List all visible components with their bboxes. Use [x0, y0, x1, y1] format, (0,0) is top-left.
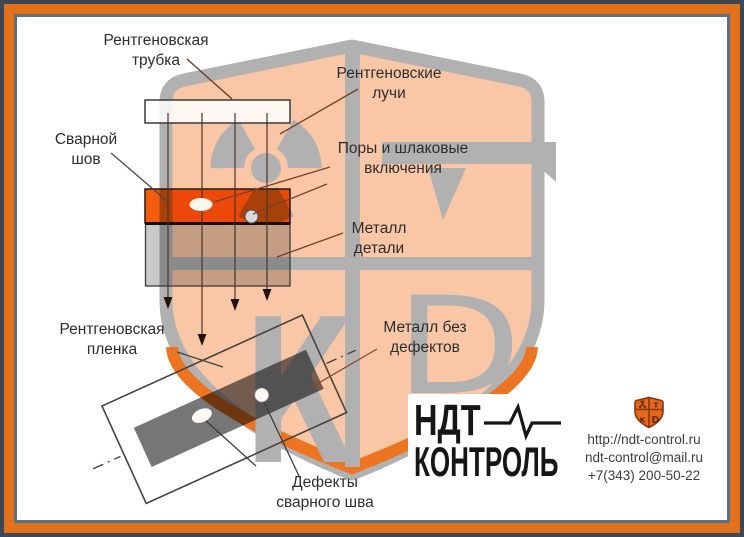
- label-xray-rays: Рентгеновские лучи: [337, 64, 442, 104]
- film-centerline-left: [93, 456, 120, 468]
- svg-text:т: т: [654, 401, 659, 411]
- weld-inclusion-shape: [245, 210, 258, 223]
- contact-block: http://ndt-control.ru ndt-control@mail.r…: [585, 431, 703, 485]
- logo-text-ndt: НДТ: [414, 399, 481, 443]
- contact-phone: +7(343) 200-50-22: [585, 467, 703, 485]
- weld-pore-shape: [190, 198, 213, 211]
- leader-weld-seam: [111, 153, 167, 201]
- logo-shield-icon: т к D: [633, 396, 665, 429]
- label-weld-defects: Дефекты сварного шва: [276, 473, 374, 513]
- logo-text-kontrol: КОНТРОЛЬ: [414, 441, 558, 483]
- pulse-icon: [482, 403, 564, 441]
- contact-website: http://ndt-control.ru: [585, 431, 703, 449]
- label-pores: Поры и шлаковые включения: [338, 139, 468, 179]
- label-metal-part: Металл детали: [352, 219, 407, 259]
- svg-text:D: D: [652, 415, 660, 426]
- svg-text:к: к: [640, 416, 646, 426]
- label-weld-seam: Сварной шов: [55, 130, 117, 170]
- label-film: Рентгеновская пленка: [60, 320, 165, 360]
- weld-seam-shape: [145, 189, 290, 223]
- infographic-canvas: К D: [0, 0, 744, 537]
- contact-email: ndt-control@mail.ru: [585, 449, 703, 467]
- label-xray-tube: Рентгеновская трубка: [104, 31, 209, 71]
- label-metal-no-defects: Металл без дефектов: [383, 318, 466, 358]
- xray-tube-shape: [145, 100, 290, 123]
- metal-block-shape: [146, 223, 291, 286]
